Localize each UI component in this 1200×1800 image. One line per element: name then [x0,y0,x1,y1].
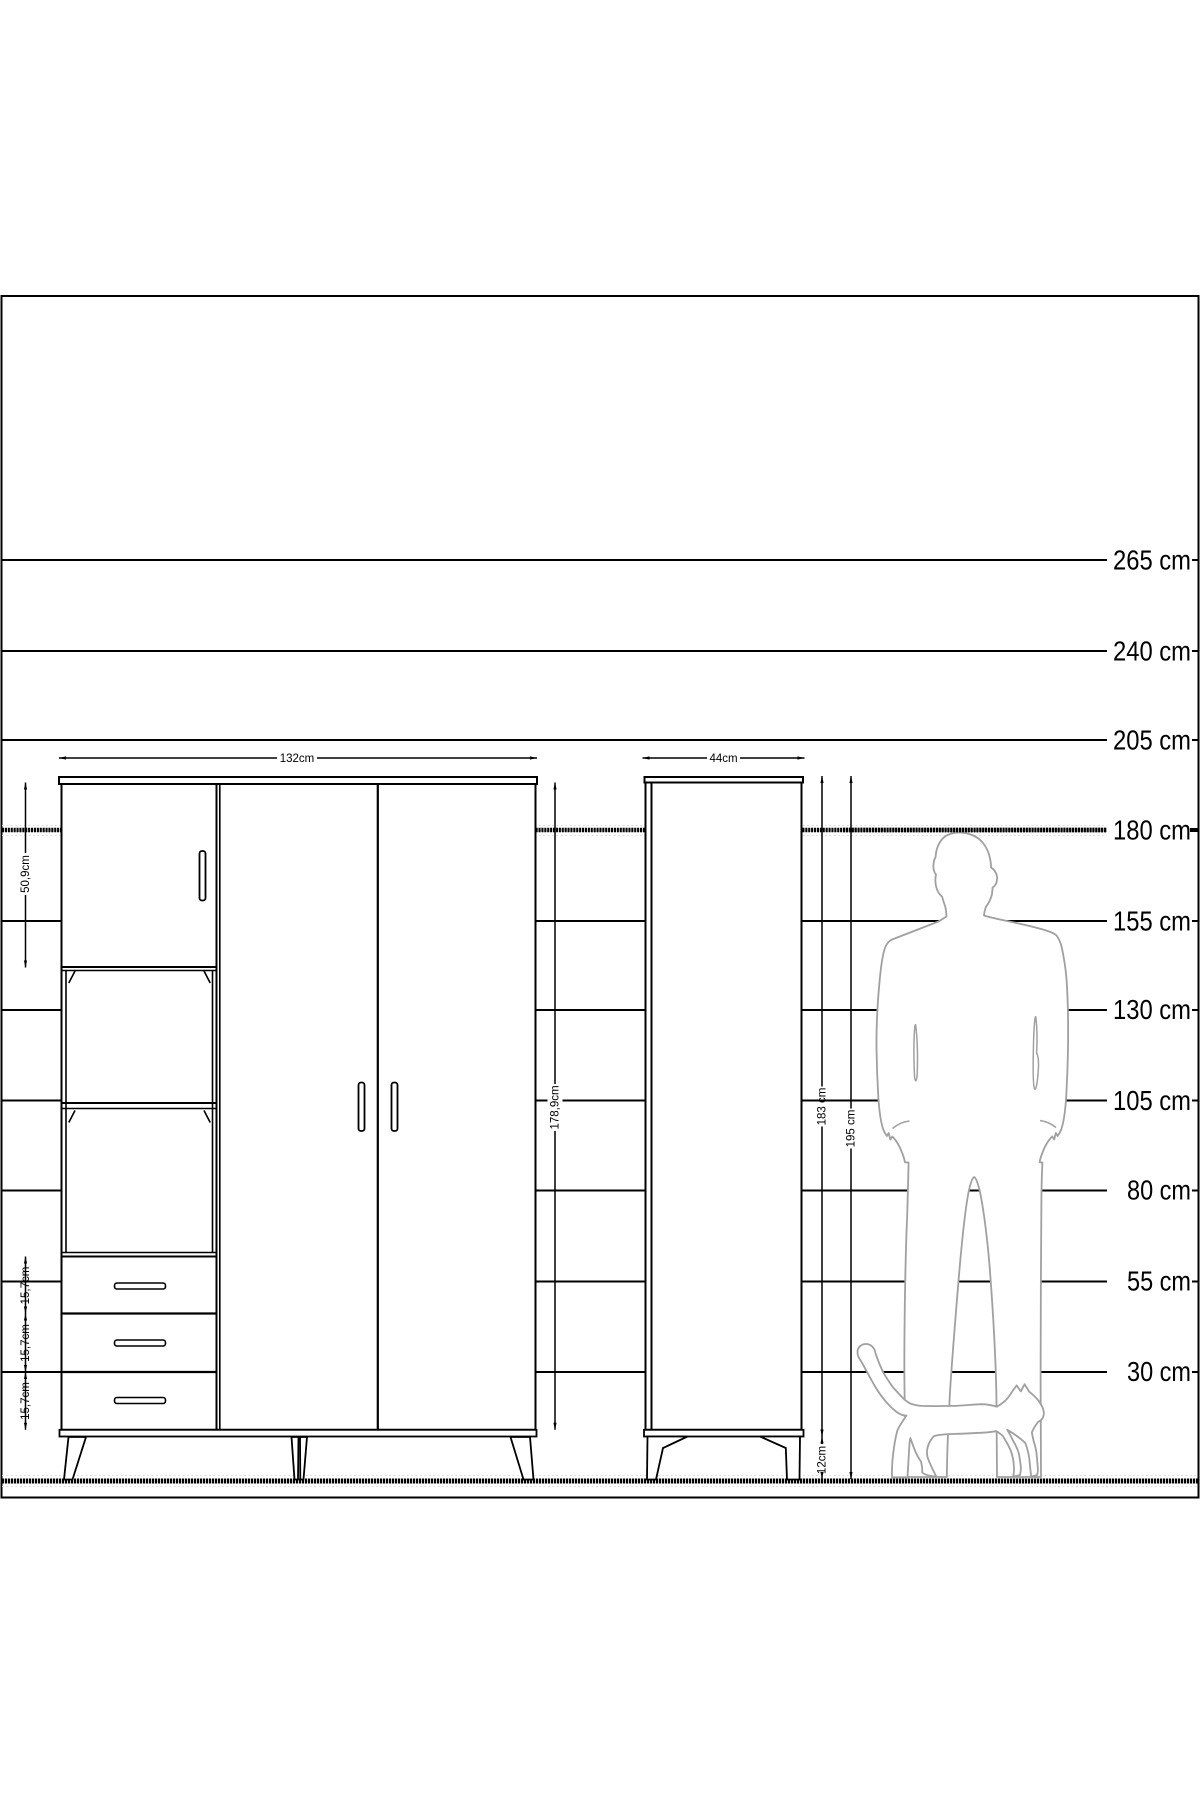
svg-text:12cm: 12cm [817,1446,829,1474]
svg-text:132cm: 132cm [280,753,315,765]
svg-text:240 cm: 240 cm [1113,636,1191,667]
svg-text:183 cm: 183 cm [817,1088,829,1126]
svg-text:130 cm: 130 cm [1113,994,1191,1025]
svg-text:30 cm: 30 cm [1127,1356,1191,1387]
svg-text:195 cm: 195 cm [846,1110,858,1148]
svg-text:15,7cm: 15,7cm [20,1267,32,1305]
svg-text:205 cm: 205 cm [1113,725,1191,756]
svg-text:105 cm: 105 cm [1113,1085,1191,1116]
svg-text:50,9cm: 50,9cm [20,855,32,893]
svg-text:15,7cm: 15,7cm [20,1382,32,1420]
svg-text:180 cm: 180 cm [1113,815,1191,846]
svg-text:178,9cm: 178,9cm [550,1085,562,1129]
svg-text:44cm: 44cm [709,753,737,765]
svg-text:55 cm: 55 cm [1127,1266,1191,1297]
svg-text:80 cm: 80 cm [1127,1175,1191,1206]
svg-text:15,7cm: 15,7cm [20,1324,32,1362]
svg-text:265 cm: 265 cm [1113,545,1191,576]
svg-text:155 cm: 155 cm [1113,906,1191,937]
